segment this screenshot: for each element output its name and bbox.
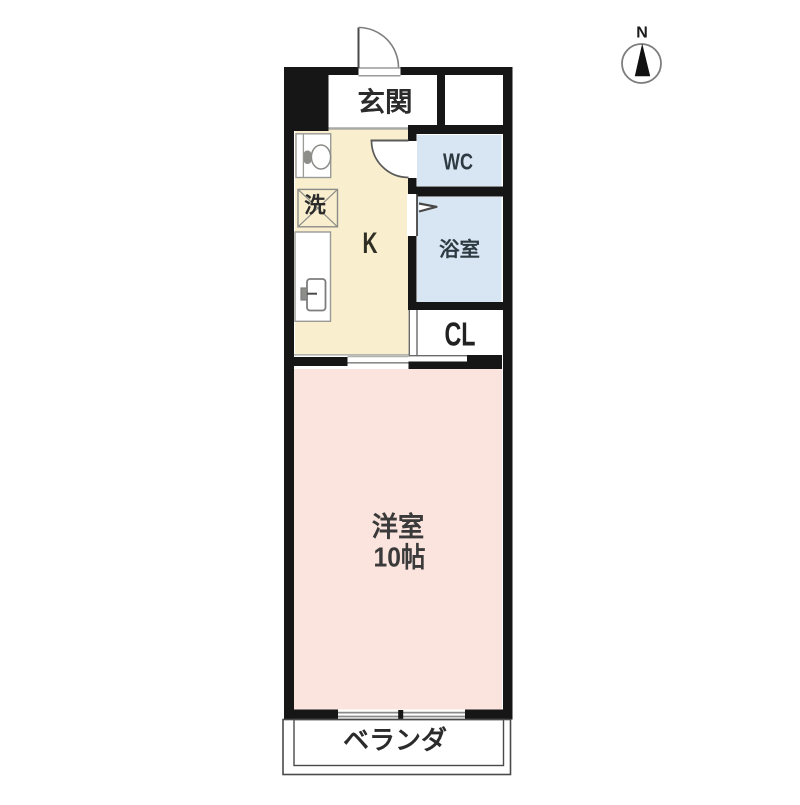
svg-text:浴室: 浴室 <box>439 237 480 261</box>
svg-text:洋室: 洋室 <box>372 511 425 542</box>
svg-text:WC: WC <box>443 149 473 175</box>
svg-text:洗: 洗 <box>304 194 326 218</box>
svg-text:10帖: 10帖 <box>374 541 426 572</box>
svg-text:N: N <box>636 25 648 42</box>
svg-text:ベランダ: ベランダ <box>343 725 447 755</box>
svg-text:CL: CL <box>445 316 476 353</box>
svg-text:K: K <box>363 227 378 260</box>
svg-text:玄関: 玄関 <box>358 87 413 118</box>
